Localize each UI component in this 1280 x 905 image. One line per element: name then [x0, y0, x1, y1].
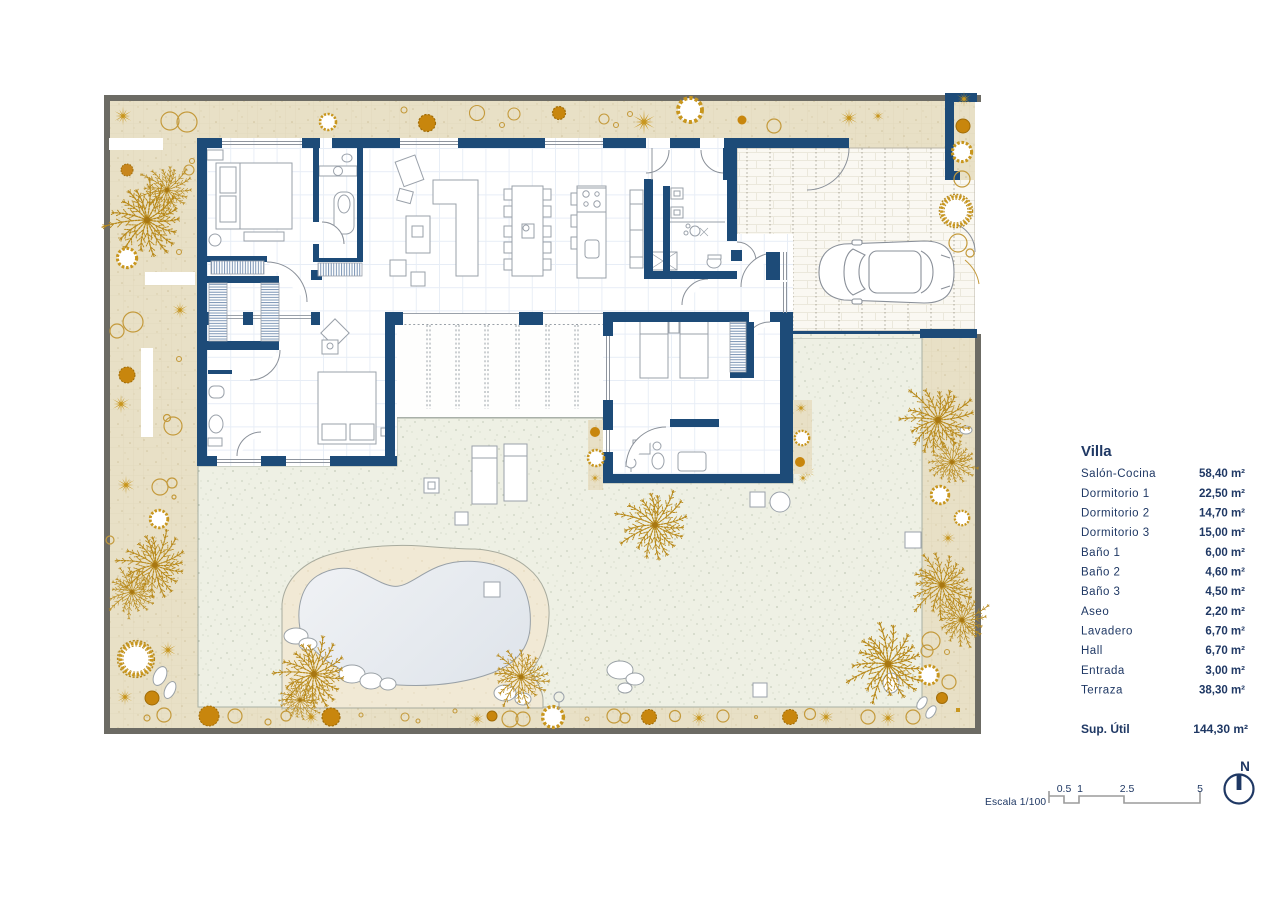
svg-text:14,70 m²: 14,70 m²	[1199, 508, 1245, 520]
svg-text:Sup. Útil: Sup. Útil	[1081, 721, 1130, 736]
svg-text:3,00 m²: 3,00 m²	[1205, 665, 1245, 677]
svg-text:5: 5	[1197, 783, 1203, 795]
svg-text:Entrada: Entrada	[1081, 665, 1125, 677]
svg-text:Lavadero: Lavadero	[1081, 626, 1133, 638]
svg-text:2.5: 2.5	[1120, 783, 1135, 795]
svg-text:2,20 m²: 2,20 m²	[1205, 606, 1245, 618]
svg-text:144,30 m²: 144,30 m²	[1193, 722, 1248, 736]
svg-text:Villa: Villa	[1081, 443, 1112, 460]
svg-text:Terraza: Terraza	[1081, 685, 1123, 697]
svg-text:Baño 2: Baño 2	[1081, 567, 1120, 579]
svg-text:38,30 m²: 38,30 m²	[1199, 685, 1245, 697]
svg-text:4,50 m²: 4,50 m²	[1205, 586, 1245, 598]
svg-text:Salón-Cocina: Salón-Cocina	[1081, 468, 1156, 480]
svg-text:58,40 m²: 58,40 m²	[1199, 468, 1245, 480]
svg-text:6,70 m²: 6,70 m²	[1205, 645, 1245, 657]
svg-text:1: 1	[1077, 783, 1083, 795]
svg-text:Dormitorio 2: Dormitorio 2	[1081, 508, 1150, 520]
svg-text:Dormitorio 3: Dormitorio 3	[1081, 527, 1150, 539]
svg-text:N: N	[1240, 759, 1250, 774]
svg-text:Baño 1: Baño 1	[1081, 547, 1120, 559]
svg-text:Aseo: Aseo	[1081, 606, 1109, 618]
svg-text:Baño 3: Baño 3	[1081, 586, 1120, 598]
svg-text:4,60 m²: 4,60 m²	[1205, 567, 1245, 579]
svg-text:Dormitorio 1: Dormitorio 1	[1081, 488, 1150, 500]
svg-text:6,70 m²: 6,70 m²	[1205, 626, 1245, 638]
svg-text:6,00 m²: 6,00 m²	[1205, 547, 1245, 559]
svg-text:15,00 m²: 15,00 m²	[1199, 527, 1245, 539]
svg-text:22,50 m²: 22,50 m²	[1199, 488, 1245, 500]
svg-text:Escala 1/100: Escala 1/100	[985, 797, 1046, 808]
svg-text:Hall: Hall	[1081, 645, 1103, 657]
svg-text:0.5: 0.5	[1057, 783, 1072, 795]
